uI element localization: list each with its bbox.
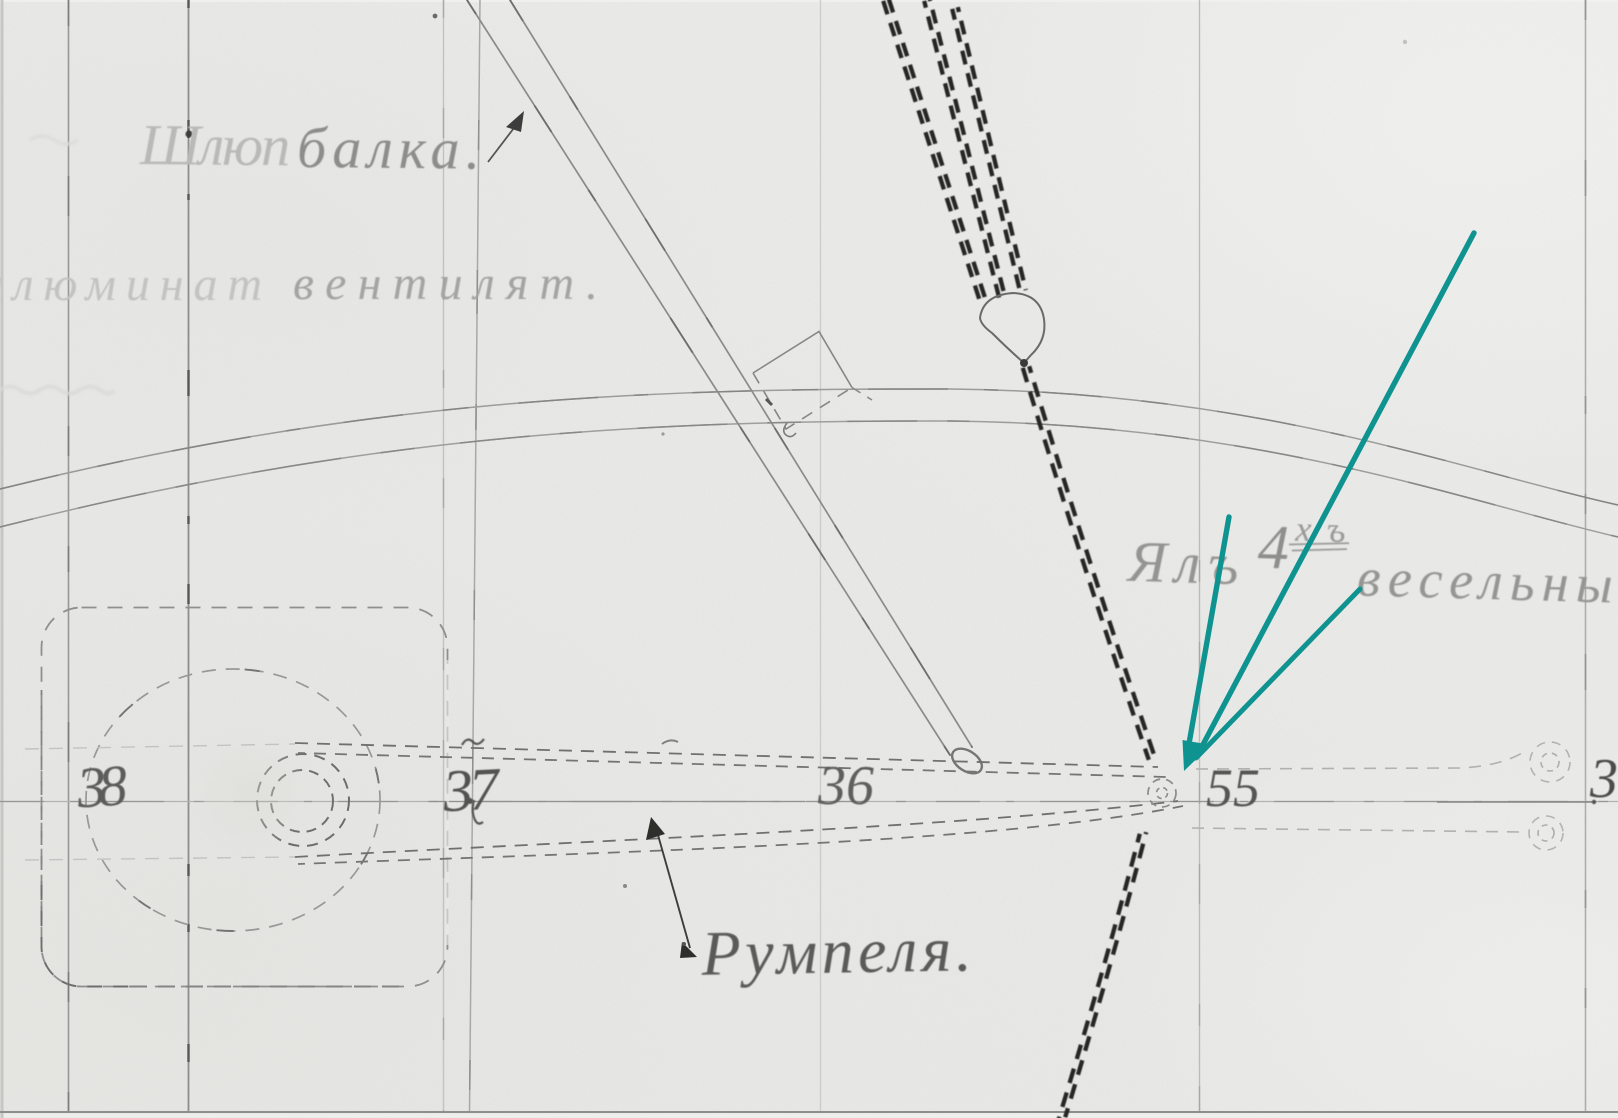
svg-text:Шлюп: Шлюп [139, 112, 291, 178]
svg-text:4: 4 [1257, 514, 1290, 583]
svg-text:36: 36 [817, 755, 874, 817]
svg-text:38: 38 [74, 752, 129, 820]
svg-text:весельный: весельный [1356, 547, 1618, 615]
svg-text:вентилят.: вентилят. [293, 257, 598, 310]
svg-text:55: 55 [1206, 758, 1260, 818]
svg-text:балка.: балка. [297, 115, 481, 182]
svg-text:3: 3 [1589, 748, 1618, 810]
